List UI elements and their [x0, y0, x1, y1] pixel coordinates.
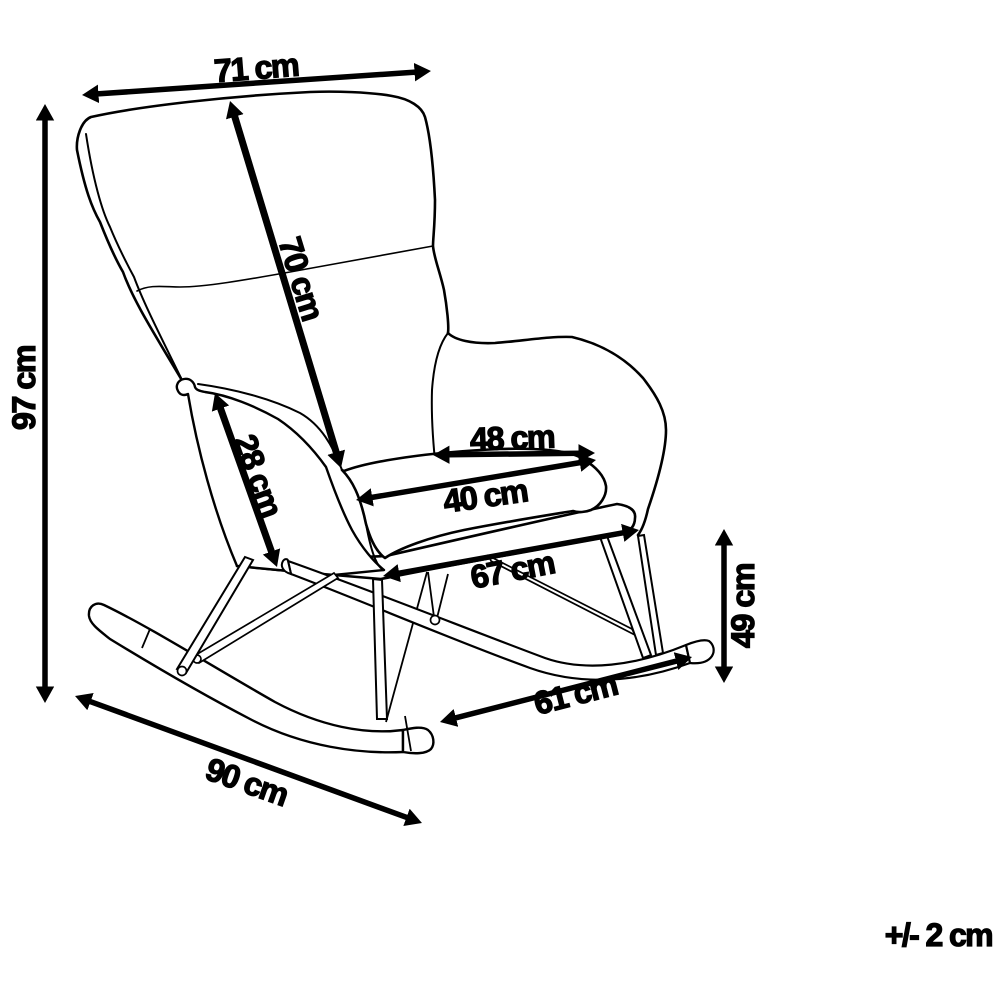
svg-text:48 cm: 48 cm: [469, 419, 554, 458]
svg-text:97 cm: 97 cm: [6, 346, 42, 430]
svg-text:49 cm: 49 cm: [725, 564, 761, 648]
svg-text:+/- 2 cm: +/- 2 cm: [885, 917, 992, 953]
svg-text:71 cm: 71 cm: [213, 47, 300, 89]
svg-text:61 cm: 61 cm: [530, 666, 620, 722]
